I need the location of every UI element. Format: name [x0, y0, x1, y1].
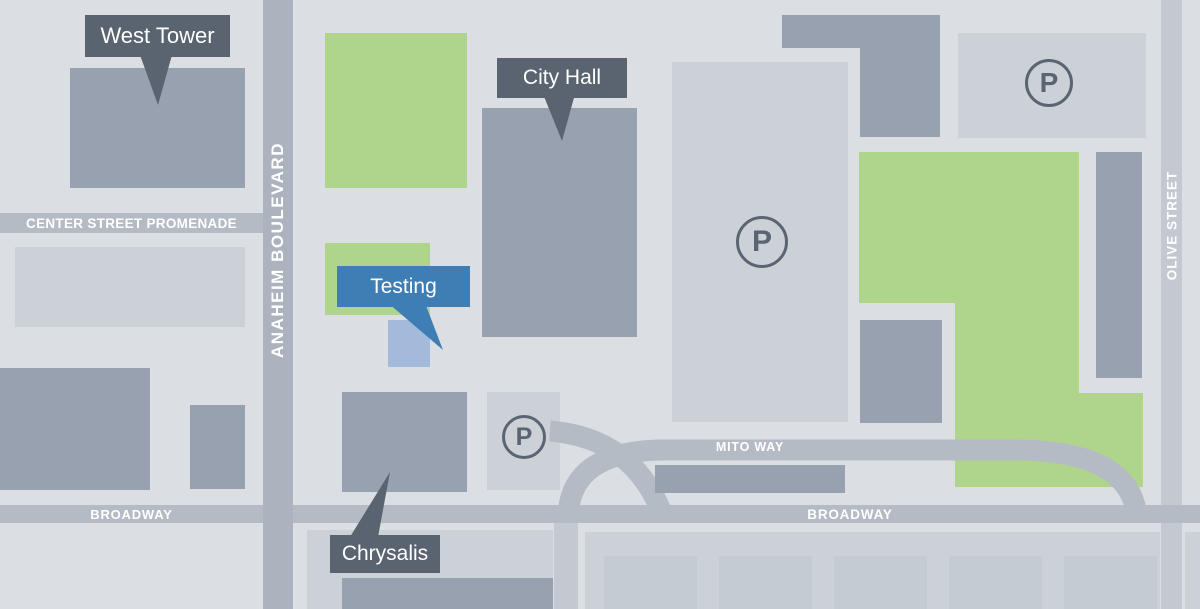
callout-pointer — [135, 55, 175, 110]
callout-west-tower: West Tower — [85, 15, 230, 57]
street-broadway-east — [293, 505, 1200, 523]
parking-icon: P — [502, 415, 546, 459]
street-label-olive: OLIVE STREET — [1157, 0, 1186, 450]
street-label-text: OLIVE STREET — [1164, 170, 1179, 280]
street-label-mito-way: MITO WAY — [660, 437, 840, 456]
street-label-broadway-west: BROADWAY — [0, 505, 263, 523]
city-map: P P P ANAHEIM BOULEVARD OLIVE STREET CEN… — [0, 0, 1200, 609]
building — [860, 15, 940, 137]
street-label-center-promenade: CENTER STREET PROMENADE — [0, 213, 263, 233]
street-label-text: ANAHEIM BOULEVARD — [268, 142, 288, 358]
building — [860, 320, 942, 423]
building — [0, 368, 150, 490]
callout-pointer — [345, 470, 395, 538]
parking-icon: P — [1025, 59, 1073, 107]
callout-pointer — [378, 303, 448, 355]
street-label-anaheim: ANAHEIM BOULEVARD — [259, 0, 297, 500]
callout-testing: Testing — [337, 266, 470, 307]
callout-pointer — [535, 94, 577, 146]
callout-city-hall: City Hall — [497, 58, 627, 98]
parking-icon: P — [736, 216, 788, 268]
callout-chrysalis: Chrysalis — [330, 535, 440, 573]
building — [1096, 152, 1142, 378]
building — [655, 465, 845, 493]
building — [342, 578, 553, 609]
street-label-broadway-east: BROADWAY — [760, 505, 940, 523]
building — [190, 405, 245, 489]
